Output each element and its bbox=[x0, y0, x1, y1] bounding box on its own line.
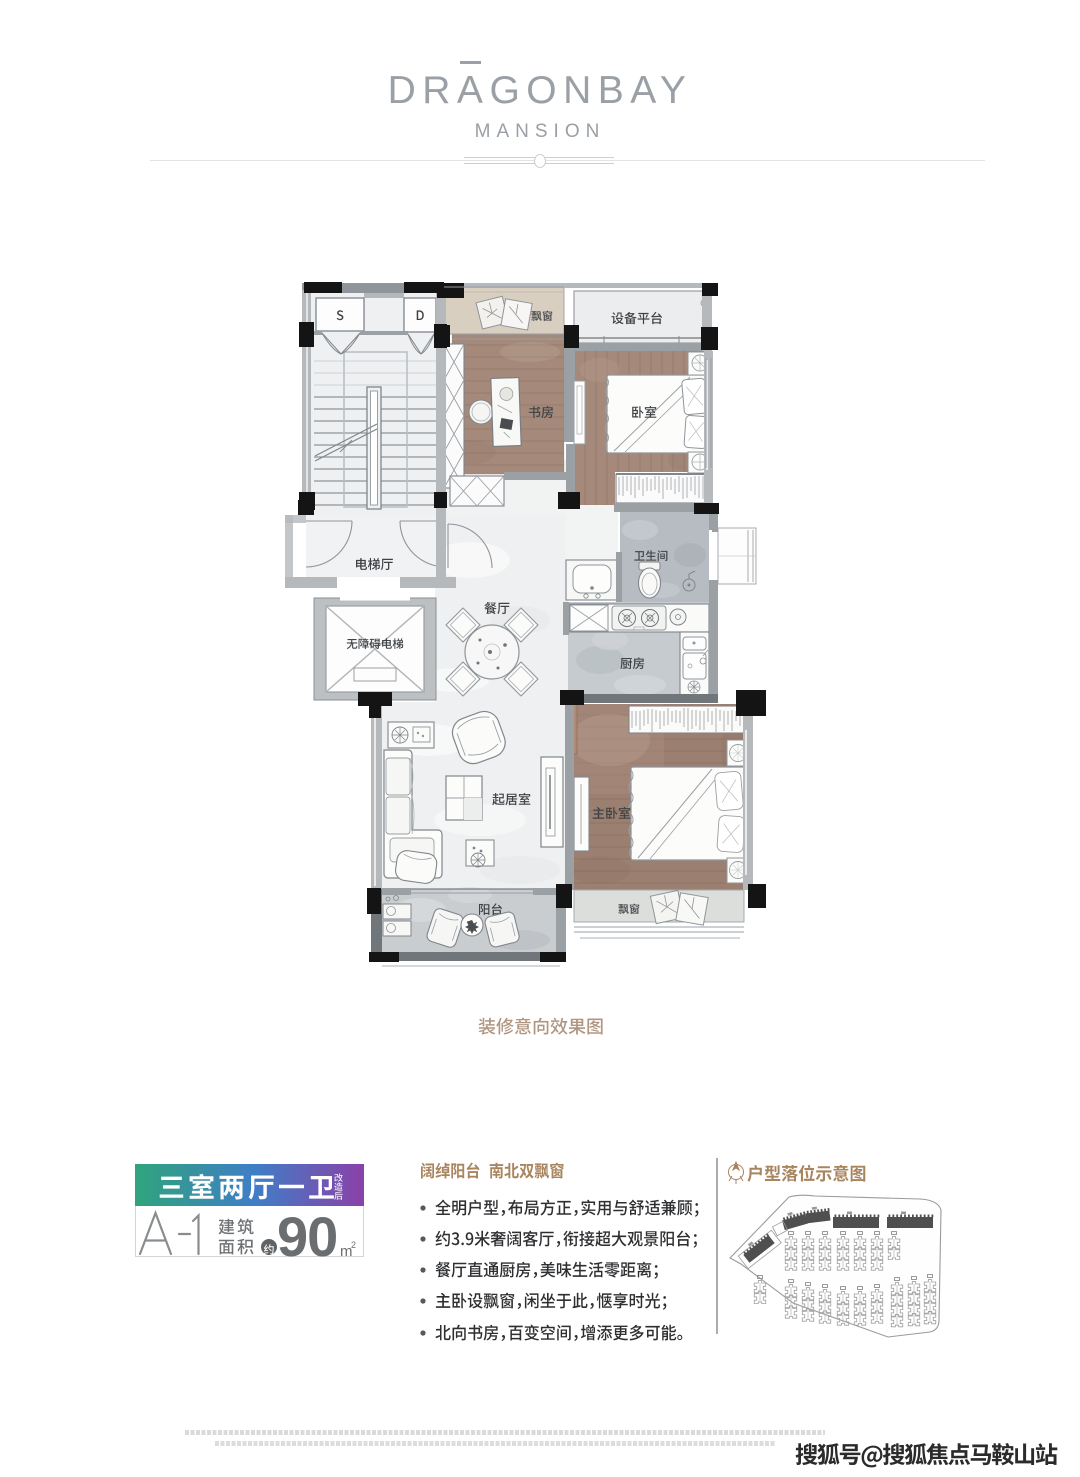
svg-text:2: 2 bbox=[351, 1240, 356, 1250]
svg-text:90: 90 bbox=[277, 1206, 337, 1258]
